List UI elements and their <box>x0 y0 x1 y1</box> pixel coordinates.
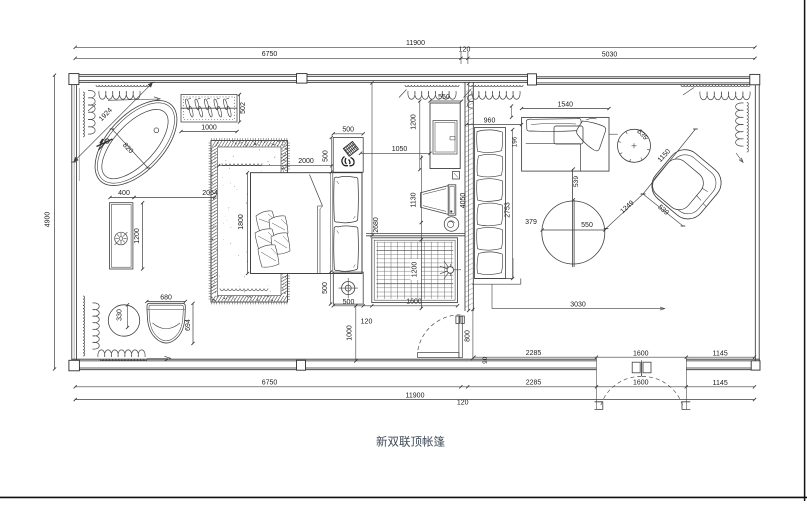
svg-text:1600: 1600 <box>633 350 649 357</box>
svg-text:2285: 2285 <box>526 350 542 357</box>
svg-text:1600: 1600 <box>406 299 422 306</box>
svg-text:2000: 2000 <box>298 158 314 165</box>
svg-text:330: 330 <box>117 309 124 321</box>
svg-text:800: 800 <box>464 330 471 342</box>
svg-text:1000: 1000 <box>201 125 217 132</box>
svg-text:502: 502 <box>240 102 247 114</box>
svg-text:2753: 2753 <box>505 202 512 218</box>
svg-text:3030: 3030 <box>570 301 586 308</box>
svg-text:539: 539 <box>573 176 580 187</box>
svg-text:2680: 2680 <box>373 217 380 233</box>
svg-text:400: 400 <box>118 190 130 197</box>
svg-text:1200: 1200 <box>411 114 418 130</box>
svg-text:4050: 4050 <box>460 193 467 209</box>
svg-text:1130: 1130 <box>411 192 418 207</box>
svg-text:694: 694 <box>185 319 192 331</box>
svg-text:1000: 1000 <box>346 325 353 341</box>
svg-text:5030: 5030 <box>602 51 618 58</box>
svg-text:550: 550 <box>581 222 593 229</box>
svg-text:11900: 11900 <box>406 393 425 400</box>
svg-text:120: 120 <box>457 399 469 406</box>
svg-text:500: 500 <box>322 282 329 294</box>
svg-text:500: 500 <box>323 150 330 162</box>
svg-text:4900: 4900 <box>45 212 52 228</box>
svg-text:1050: 1050 <box>392 146 408 153</box>
svg-text:500: 500 <box>342 127 354 134</box>
svg-text:196: 196 <box>512 136 519 147</box>
svg-text:新双联顶帐篷: 新双联顶帐篷 <box>376 435 445 449</box>
svg-text:2285: 2285 <box>526 379 542 386</box>
svg-text:1800: 1800 <box>238 214 245 230</box>
svg-text:1200: 1200 <box>412 262 419 278</box>
svg-text:1145: 1145 <box>713 380 728 387</box>
svg-text:120: 120 <box>361 319 373 326</box>
svg-text:1145: 1145 <box>713 351 728 358</box>
svg-text:6750: 6750 <box>262 380 278 387</box>
svg-text:1600: 1600 <box>633 379 649 386</box>
svg-text:960: 960 <box>484 117 496 124</box>
svg-text:90: 90 <box>483 356 489 363</box>
svg-text:6750: 6750 <box>262 51 278 58</box>
svg-text:500: 500 <box>343 299 355 306</box>
svg-text:1200: 1200 <box>134 228 141 244</box>
svg-text:379: 379 <box>525 219 537 226</box>
svg-text:1540: 1540 <box>558 101 574 108</box>
svg-text:680: 680 <box>160 294 172 301</box>
svg-text:120: 120 <box>459 47 471 54</box>
svg-text:11900: 11900 <box>406 40 425 47</box>
